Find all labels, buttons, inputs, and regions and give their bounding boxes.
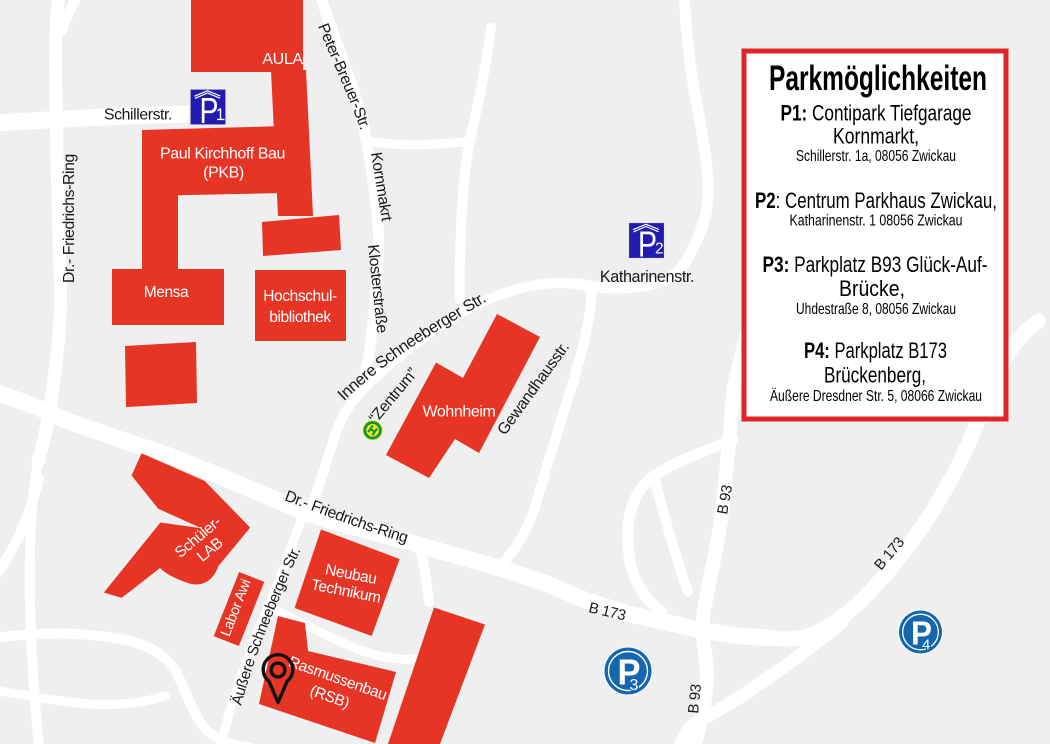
svg-text:Katharinenstr.: Katharinenstr.: [600, 268, 694, 286]
svg-text:P: P: [200, 90, 219, 131]
svg-text:Äußere Dresdner Str. 5, 08066: Äußere Dresdner Str. 5, 08066 Zwickau: [770, 387, 982, 405]
svg-text:P2: Centrum Parkhaus Zwickau,: P2: Centrum Parkhaus Zwickau,: [755, 188, 997, 213]
svg-text:(PKB): (PKB): [203, 165, 244, 182]
svg-text:Mensa: Mensa: [144, 284, 189, 301]
svg-text:B 93: B 93: [685, 683, 705, 714]
svg-text:Katharinenstr. 1 08056 Zwickau: Katharinenstr. 1 08056 Zwickau: [790, 213, 963, 230]
svg-text:Wohnheim: Wohnheim: [423, 404, 496, 421]
svg-text:Schillerstr. 1a, 08056 Zwickau: Schillerstr. 1a, 08056 Zwickau: [796, 148, 956, 165]
svg-text:Paul Kirchhoff Bau: Paul Kirchhoff Bau: [160, 146, 285, 163]
svg-text:Parkmöglichkeiten: Parkmöglichkeiten: [769, 59, 987, 98]
svg-text:Schillerstr.: Schillerstr.: [104, 107, 172, 124]
svg-text:bibliothek: bibliothek: [269, 309, 331, 326]
svg-text:Dr.- Friedrichs-Ring: Dr.- Friedrichs-Ring: [61, 154, 78, 283]
svg-text:4: 4: [922, 637, 930, 654]
svg-text:2: 2: [655, 241, 664, 258]
svg-text:Brückenberg,: Brückenberg,: [824, 362, 926, 387]
svg-text:Brücke,: Brücke,: [839, 276, 905, 301]
svg-text:3: 3: [630, 677, 639, 694]
svg-text:Kornmarkt,: Kornmarkt,: [833, 124, 919, 149]
svg-text:Hochschul-: Hochschul-: [263, 288, 337, 305]
svg-text:P4: Parkplatz B173: P4: Parkplatz B173: [804, 338, 947, 363]
svg-text:AULA: AULA: [262, 51, 303, 68]
svg-text:P3: Parkplatz B93 Glück-Auf-: P3: Parkplatz B93 Glück-Auf-: [763, 252, 988, 277]
svg-text:P1: Contipark Tiefgarage: P1: Contipark Tiefgarage: [781, 101, 972, 126]
svg-text:Uhdestraße 8, 08056 Zwickau: Uhdestraße 8, 08056 Zwickau: [796, 301, 956, 318]
